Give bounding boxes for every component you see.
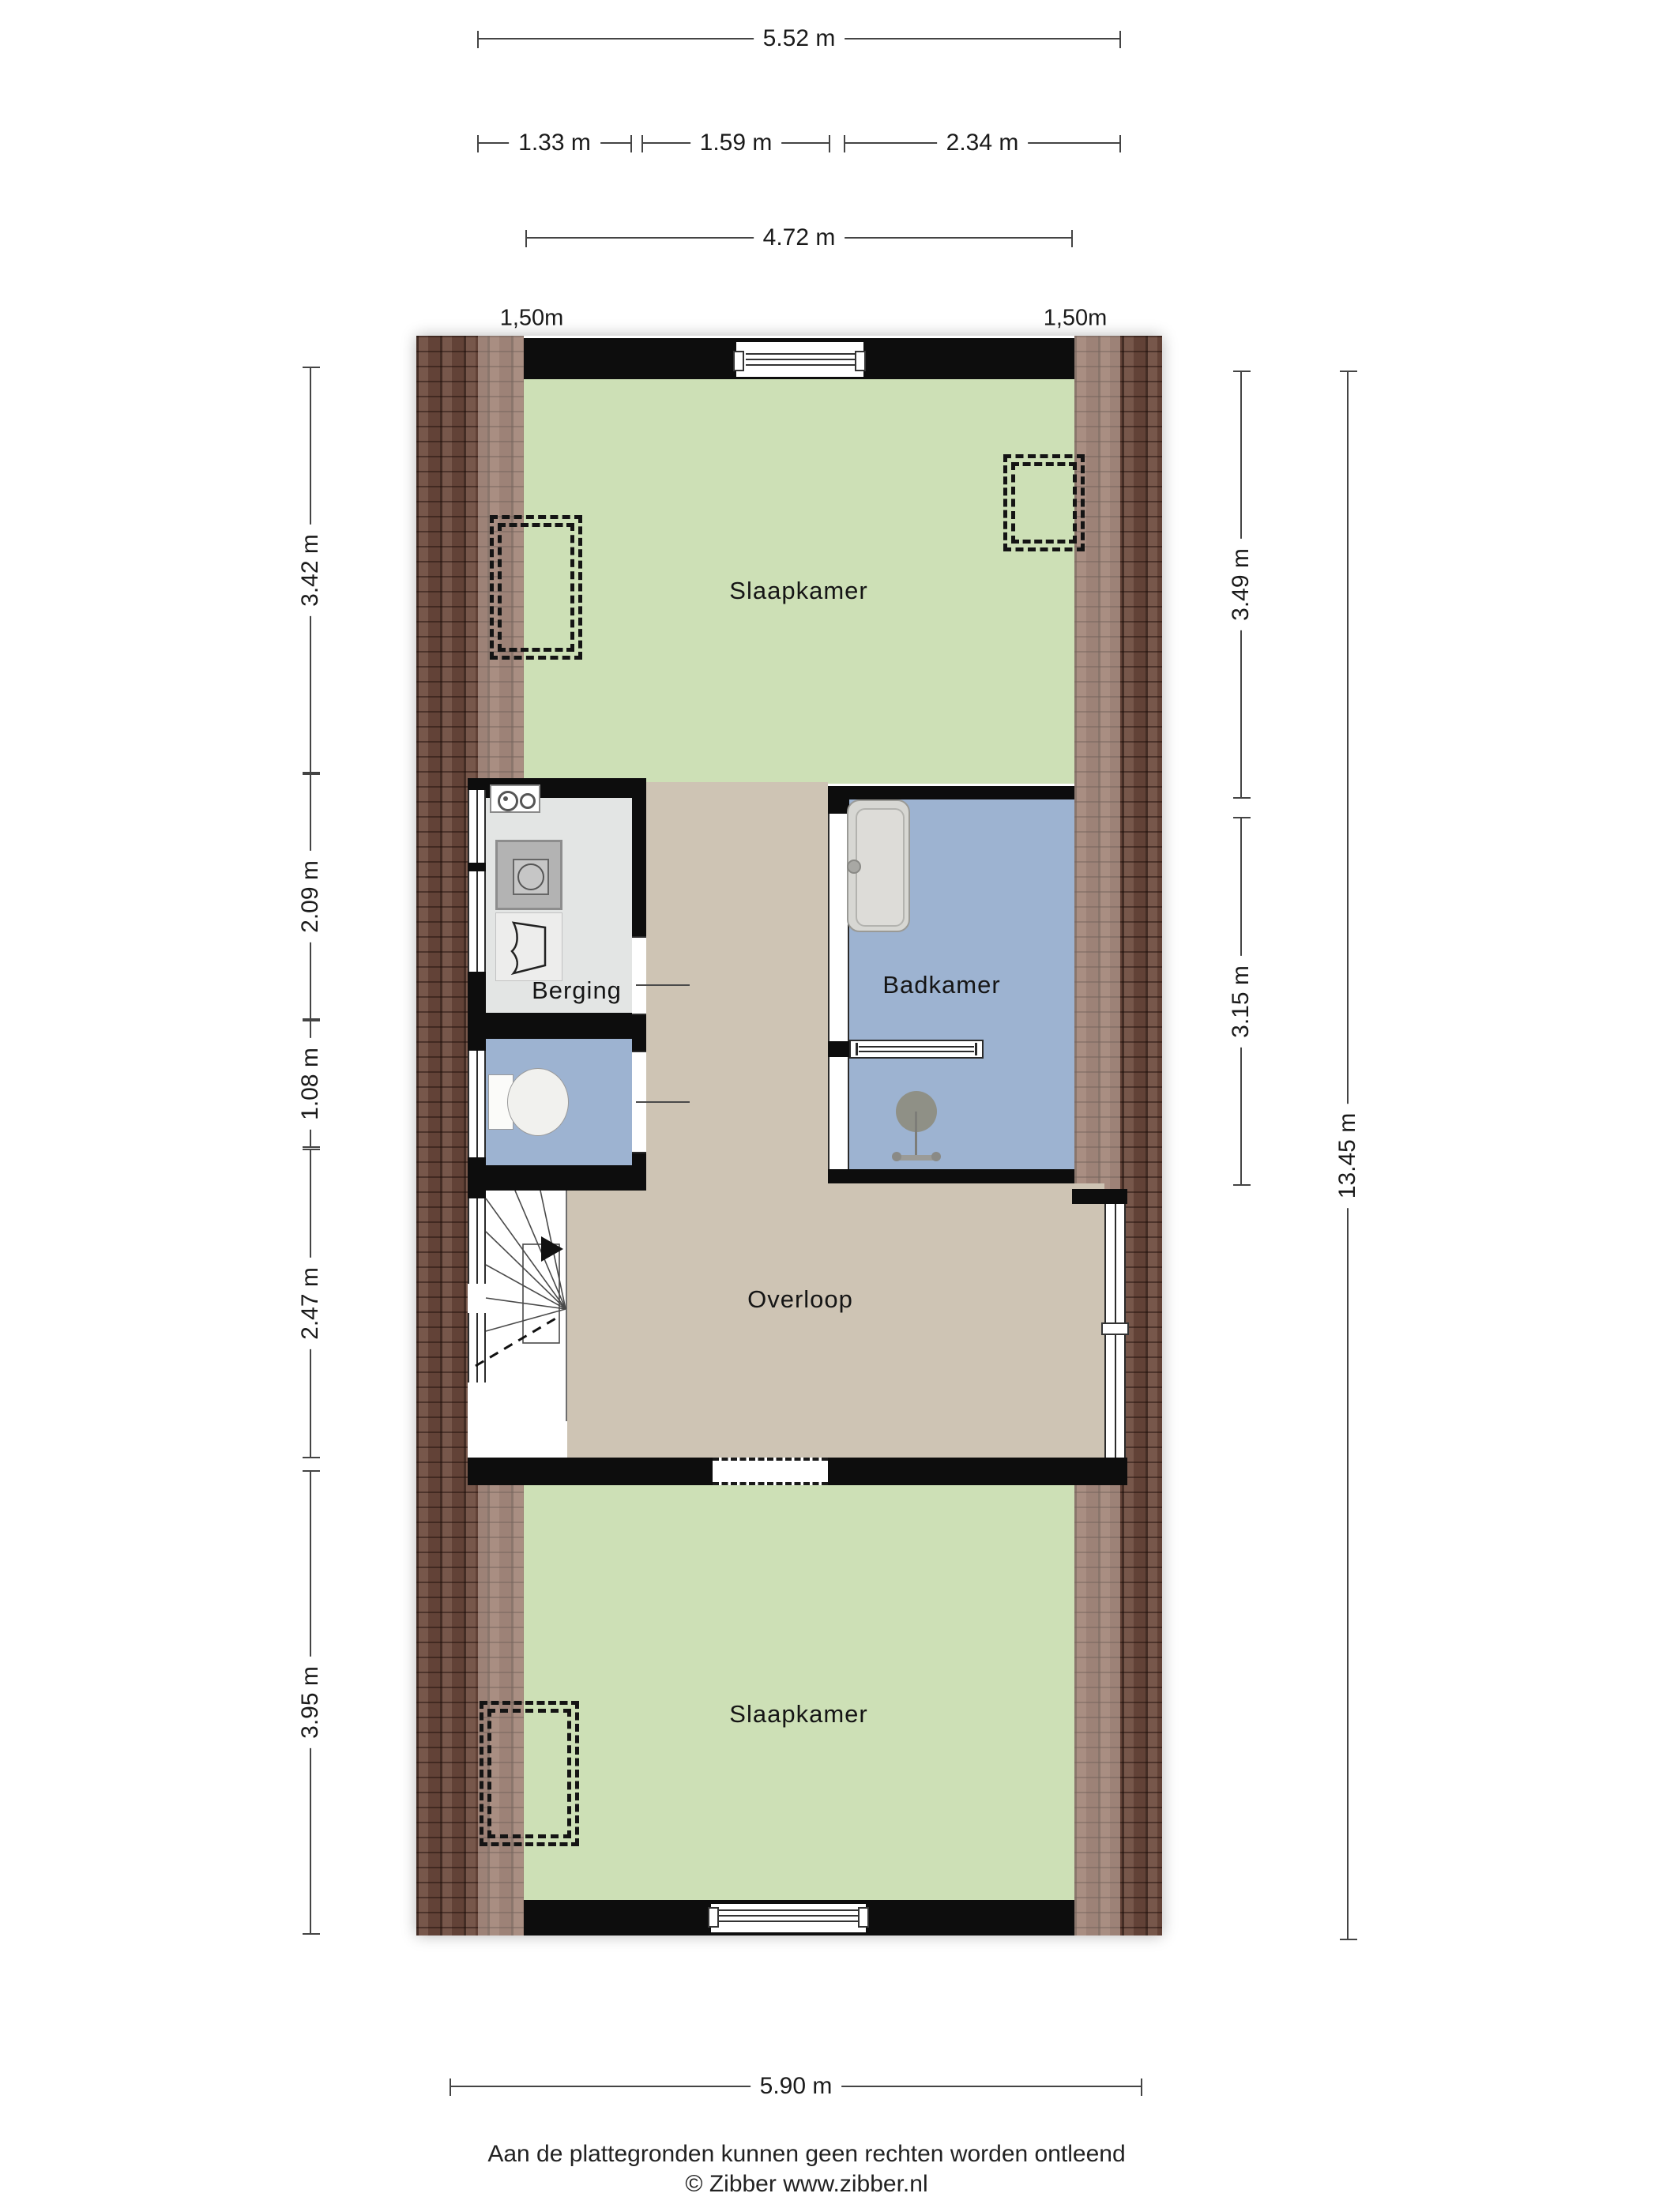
- storage-door-leaf: [636, 984, 690, 986]
- window-landing-right-jamb: [1101, 1322, 1129, 1335]
- label-bathroom: Badkamer: [882, 971, 1000, 999]
- bedroom-bottom-door-opening: [713, 1458, 828, 1485]
- headroom-band-right: [1074, 336, 1120, 1935]
- dim-left-4: 2.47 m: [310, 1149, 311, 1458]
- toilet-icon: [507, 1068, 569, 1136]
- dim-left-3: 1.08 m: [310, 1021, 311, 1147]
- window-storage-left-2: [468, 871, 486, 972]
- dim-right-1: 3.49 m: [1240, 371, 1242, 798]
- window-storage-left-1: [468, 790, 486, 863]
- shower-mixer-icon: [895, 1155, 938, 1161]
- dim-bottom-total: 5.90 m: [450, 2086, 1142, 2087]
- staircase: [468, 1191, 567, 1458]
- dormer-outline-top-right: [1003, 454, 1085, 551]
- label-landing: Overloop: [747, 1285, 853, 1314]
- bathroom-door-opening: [828, 814, 849, 1041]
- window-top-glazing: [746, 353, 855, 370]
- headroom-label-right: 1,50m: [1044, 306, 1108, 332]
- dim-top-seg2: 1.59 m: [642, 142, 829, 144]
- dim-top-seg3: 2.34 m: [845, 142, 1120, 144]
- washing-machine-icon: [495, 840, 562, 910]
- room-landing-corridor: [646, 782, 828, 1458]
- wall-below-toilet: [468, 1165, 646, 1191]
- dim-left-5: 3.95 m: [310, 1471, 311, 1934]
- dim-top-seg1: 1.33 m: [478, 142, 631, 144]
- window-top-jamb-left: [733, 351, 744, 371]
- shower-stem: [915, 1112, 917, 1161]
- window-landing-right: [1104, 1204, 1126, 1458]
- bathtub-icon: [847, 799, 910, 932]
- dim-right-2: 3.15 m: [1240, 818, 1242, 1185]
- label-bedroom-top: Slaapkamer: [729, 577, 867, 605]
- dim-left-2: 2.09 m: [310, 774, 311, 1019]
- dim-right-total: 13.45 m: [1347, 371, 1349, 1939]
- wall-bathroom-top: [828, 786, 1074, 799]
- window-top-jamb-right: [855, 351, 866, 371]
- dim-left-1: 3.42 m: [310, 367, 311, 773]
- wall-bathroom-left-stub-top: [828, 786, 849, 814]
- label-storage: Berging: [532, 976, 622, 1005]
- footer-disclaimer: Aan de plattegronden kunnen geen rechten…: [487, 2141, 1125, 2168]
- toilet-door-leaf: [636, 1101, 690, 1103]
- dim-top-total: 5.52 m: [478, 38, 1120, 39]
- wall-landing-right-stub: [1072, 1189, 1127, 1204]
- radiator-icon: [849, 1040, 984, 1059]
- wall-bathroom-left-stub-mid: [828, 1041, 849, 1057]
- window-bottom-glazing: [719, 1909, 858, 1926]
- mechanical-ventilation-icon: [490, 784, 540, 813]
- wall-storage-bottom: [468, 1013, 646, 1039]
- room-landing-right: [828, 1183, 1104, 1458]
- dormer-outline-bottom-left: [480, 1701, 579, 1846]
- dormer-outline-top-left: [490, 515, 582, 660]
- laundry-basket-icon: [495, 912, 562, 981]
- storage-door-opening: [632, 936, 646, 1015]
- footer-copyright: © Zibber www.zibber.nl: [685, 2171, 927, 2198]
- wall-bathroom-bottom: [828, 1169, 1074, 1183]
- headroom-label-left: 1,50m: [500, 306, 564, 332]
- bathroom-door-opening-lower: [828, 1057, 849, 1169]
- label-bedroom-bottom: Slaapkamer: [729, 1700, 867, 1729]
- window-bottom-jamb-right: [858, 1907, 869, 1928]
- dim-top-inner: 4.72 m: [526, 237, 1072, 239]
- floor-plan: Slaapkamer Berging Badkamer Overloop Sla…: [0, 0, 1659, 2212]
- window-bottom-jamb-left: [708, 1907, 719, 1928]
- window-toilet-left: [468, 1051, 486, 1157]
